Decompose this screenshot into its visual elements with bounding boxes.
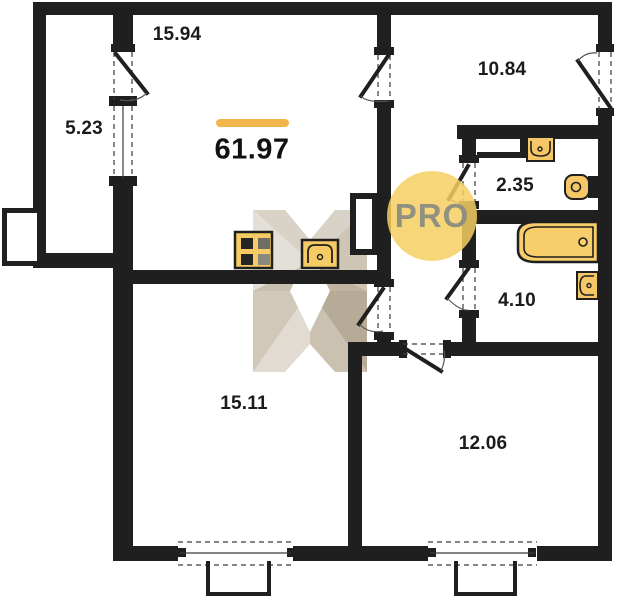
stove-icon (235, 232, 272, 268)
area-label-room-right: 12.06 (459, 433, 508, 455)
bathroom-washbasin-icon (577, 272, 598, 299)
pro-badge-label: PRO (395, 197, 470, 235)
balcony-rails (206, 561, 517, 596)
kitchen-sink-icon (302, 240, 338, 268)
wc-washbasin-icon (527, 137, 554, 161)
total-area-accent-bar (216, 119, 289, 127)
pro-badge: PRO (387, 171, 477, 261)
area-label-wc: 2.35 (496, 175, 534, 197)
area-label-room-left: 15.11 (220, 393, 268, 415)
area-label-balcony: 5.23 (65, 118, 103, 140)
walls (33, 2, 612, 561)
toilet-icon (565, 175, 598, 199)
bathtub-icon (518, 222, 598, 262)
area-label-kitchen-living: 15.94 (153, 24, 202, 46)
floor-plan: 15.94 5.23 10.84 2.35 4.10 15.11 12.06 6… (0, 0, 619, 600)
area-label-bedroom: 10.84 (478, 59, 527, 81)
total-area-label: 61.97 (214, 134, 289, 167)
area-label-bathroom: 4.10 (498, 290, 536, 312)
